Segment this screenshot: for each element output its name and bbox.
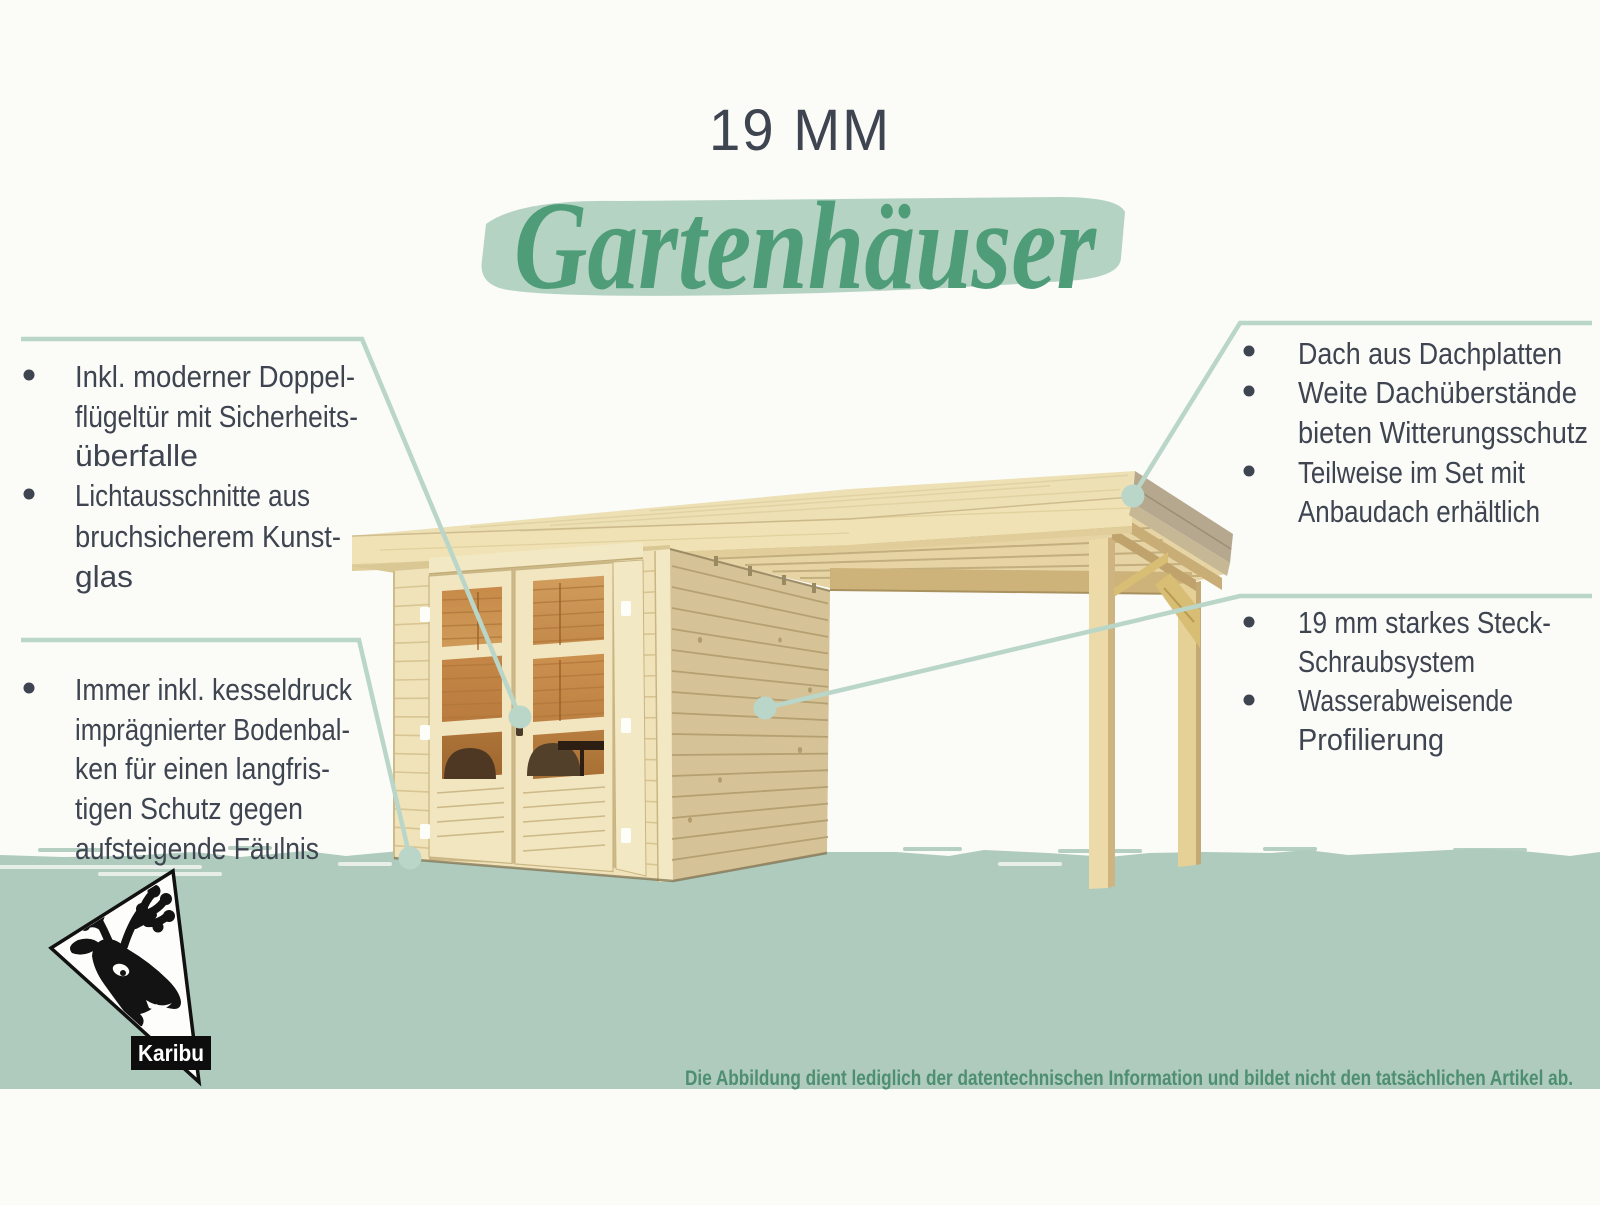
svg-text:Profilierung: Profilierung <box>1298 722 1444 757</box>
svg-text:überfalle: überfalle <box>75 438 198 473</box>
svg-text:Anbaudach erhältlich: Anbaudach erhältlich <box>1298 494 1540 529</box>
svg-text:Die Abbildung dient lediglich: Die Abbildung dient lediglich der datent… <box>685 1067 1573 1090</box>
svg-text:19 mm starkes Steck-: 19 mm starkes Steck- <box>1298 605 1551 640</box>
svg-text:Inkl. moderner Doppel-: Inkl. moderner Doppel- <box>75 359 355 394</box>
svg-text:Weite Dachüberstände: Weite Dachüberstände <box>1298 375 1577 410</box>
svg-text:Schraubsystem: Schraubsystem <box>1298 644 1475 679</box>
svg-text:19 MM: 19 MM <box>709 98 891 163</box>
svg-text:ken für einen langfris-: ken für einen langfris- <box>75 751 330 786</box>
svg-text:Dach aus Dachplatten: Dach aus Dachplatten <box>1298 336 1562 371</box>
svg-text:bruchsicherem Kunst-: bruchsicherem Kunst- <box>75 519 341 554</box>
svg-text:Karibu: Karibu <box>138 1040 204 1066</box>
svg-text:Teilweise im Set mit: Teilweise im Set mit <box>1298 455 1525 490</box>
svg-text:Lichtausschnitte aus: Lichtausschnitte aus <box>75 478 310 513</box>
svg-text:flügeltür mit Sicherheits-: flügeltür mit Sicherheits- <box>75 399 358 434</box>
svg-text:Wasserabweisende: Wasserabweisende <box>1298 683 1513 718</box>
svg-text:imprägnierter Bodenbal-: imprägnierter Bodenbal- <box>75 712 350 747</box>
svg-text:tigen Schutz gegen: tigen Schutz gegen <box>75 791 303 826</box>
svg-text:bieten Witterungsschutz: bieten Witterungsschutz <box>1298 415 1588 450</box>
svg-text:Gartenhäuser: Gartenhäuser <box>514 177 1097 316</box>
svg-text:glas: glas <box>75 559 133 594</box>
svg-text:aufsteigende Fäulnis: aufsteigende Fäulnis <box>75 831 319 866</box>
svg-text:Immer inkl. kesseldruck: Immer inkl. kesseldruck <box>75 672 352 707</box>
